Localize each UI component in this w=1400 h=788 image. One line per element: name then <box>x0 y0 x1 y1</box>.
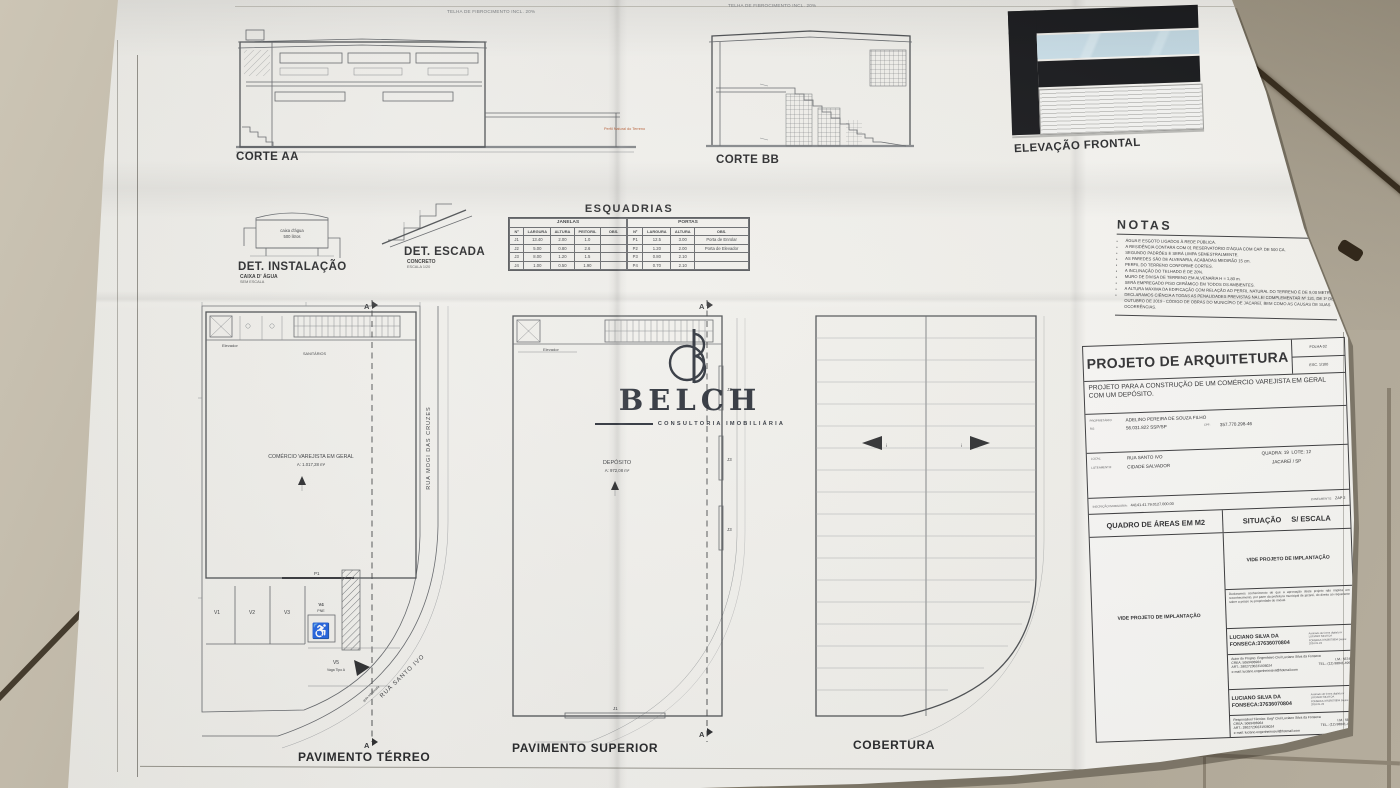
corte-aa-linework <box>236 30 636 152</box>
terreo-label: PAVIMENTO TÉRREO <box>298 750 430 764</box>
folha-label: FOLHA <box>1309 345 1321 349</box>
notas-block: NOTAS ÁGUA E ESGOTO LIGADOS À REDE PÚBLI… <box>1115 218 1339 321</box>
local-label: LOCAL: <box>1091 456 1127 462</box>
signature-name: LUCIANO SILVA DA FONSECA:37636070804 <box>1227 633 1309 648</box>
superior-label: PAVIMENTO SUPERIOR <box>512 741 658 755</box>
terreo-room-area: A: 1.017,28 m² <box>297 462 326 467</box>
terreo-room-label: COMÉRCIO VAREJISTA EM GERAL <box>268 453 354 460</box>
corte-bb-label: CORTE BB <box>716 154 779 166</box>
esquadrias-block: ESQUADRIAS JANELAS Nº LARGURA ALTURA PEI… <box>508 203 750 271</box>
terreo-stall-pne: PNE <box>317 609 325 613</box>
quadro-areas-cell: VIDE PROJETO DE IMPLANTAÇÃO <box>1090 533 1231 742</box>
title-block: PROJETO DE ARQUITETURA FOLHA 02 ESC. 1/1… <box>1082 337 1359 743</box>
det-escada-sub2: ESCALA 1/20 <box>407 265 430 269</box>
superior-room-area: A: 972,08 m² <box>605 468 630 473</box>
portas-group-header: PORTAS <box>628 219 749 228</box>
det-instalacao-drawing: caixa d'água 500 litros <box>236 202 348 262</box>
escala-label: ESC. <box>1309 363 1318 367</box>
watermark-rule <box>595 423 653 424</box>
esquadrias-table: JANELAS Nº LARGURA ALTURA PEITORIL OBS. … <box>508 217 750 271</box>
roof-note-corte-bb: TELHA DE FIBROCIMENTO INCL. 20% <box>728 3 816 8</box>
loteamento-value: CIDADE SALVADOR <box>1127 463 1170 469</box>
cpf-value: 357.770.298-46 <box>1220 421 1252 427</box>
terreo-section-marker-bottom: A <box>364 741 370 750</box>
photo-of-architectural-drawing: TELHA DE FIBROCIMENTO INCL. 20% TELHA DE… <box>0 0 1400 788</box>
belch-logo-icon <box>661 326 719 386</box>
situacao-header: SITUAÇÃO S/ ESCALA <box>1222 506 1351 532</box>
cidade-value: JACAREÍ / SP <box>1229 457 1344 466</box>
vide-projeto-left: VIDE PROJETO DE IMPLANTAÇÃO <box>1092 611 1225 624</box>
cobertura-slope-left: i <box>886 443 887 448</box>
terreo-section-marker-top: A <box>364 302 370 311</box>
escala-cell: ESC. 1/100 <box>1293 355 1346 373</box>
terreo-stall-v2: V2 <box>249 610 255 616</box>
quadra-value: QUADRA: 19 <box>1261 450 1288 456</box>
tank-text-1: caixa d'água <box>280 228 304 233</box>
corte-aa-label: CORTE AA <box>236 151 299 163</box>
superior-window-j1: J1 <box>613 706 618 711</box>
corte-aa-drawing <box>232 22 642 157</box>
tank-text-2: 500 litros <box>284 234 301 239</box>
autor-projeto-block: Autor do Projeto: Engenheiro Civil Lucia… <box>1228 651 1356 690</box>
digital-signature-2: LUCIANO SILVA DA FONSECA:37636070804 Ass… <box>1229 686 1357 716</box>
inscricao-label: INSCRIÇÃO IMOBILIÁRIA: <box>1093 503 1128 508</box>
terreo-stall-v1: V1 <box>214 610 220 616</box>
elevacao-frontal-drawing <box>1004 3 1208 142</box>
terreo-linework: A A Elevador SANITÁRIOS COMÉRCIO VAREJIS… <box>198 300 448 750</box>
det-instalacao-sub2: SEM ESCALA <box>240 280 264 284</box>
det-instalacao-linework: caixa d'água 500 litros <box>244 213 340 258</box>
cobertura-drawing: i i <box>798 300 1054 748</box>
janelas-table: JANELAS Nº LARGURA ALTURA PEITORIL OBS. … <box>509 218 627 270</box>
roof-note-corte-aa: TELHA DE FIBROCIMENTO INCL. 20% <box>447 9 535 14</box>
situacao-label: SITUAÇÃO <box>1243 515 1282 525</box>
terreo-stall-v3: V3 <box>284 610 290 616</box>
cpf-label: CPF: <box>1204 422 1220 428</box>
escala-value: 1/100 <box>1319 362 1328 366</box>
quadro-areas-header: QUADRO DE ÁREAS EM M2 <box>1089 510 1223 537</box>
lote-value: LOTE: 12 <box>1291 449 1311 455</box>
superior-elevador-label: Elevador <box>543 347 559 352</box>
det-escada-drawing <box>374 190 479 248</box>
janelas-group-header: JANELAS <box>510 219 627 228</box>
portas-table: PORTAS Nº LARGURA ALTURA OBS. P112.53.00… <box>627 218 749 270</box>
elevation-rol-door <box>1039 84 1205 136</box>
cobertura-label: COBERTURA <box>853 738 935 752</box>
terreo-stall-v5: V5 <box>333 660 339 666</box>
inscricao-value: 44141.41.79.0127.000.00 <box>1131 501 1174 507</box>
rg-value: 56.031.822 SSP/SP <box>1126 423 1204 431</box>
terrain-profile-note: Perfil Natural do Terreno <box>604 127 645 131</box>
esquadrias-title: ESQUADRIAS <box>508 203 750 215</box>
nota-item: DECLARAMOS CIÊNCIA A TODAS AS PENALIDADE… <box>1124 292 1337 315</box>
superior-room-label: DEPÓSITO <box>603 459 632 466</box>
belch-brand-text: BELCH <box>588 386 792 415</box>
belch-tagline: CONSULTORIA IMOBILIÁRIA <box>658 421 785 427</box>
belch-watermark: BELCH CONSULTORIA IMOBILIÁRIA <box>588 326 792 427</box>
elevation-glass-band <box>1037 30 1200 60</box>
cobertura-linework: i i <box>816 316 1044 740</box>
corte-bb-linework <box>706 31 914 146</box>
zoneamento-value: ZAP 2 <box>1335 495 1346 499</box>
superior-window-j3: J3 <box>727 527 732 532</box>
proprietario-label: PROPRIETÁRIO: <box>1090 418 1126 424</box>
det-escada-linework <box>382 204 472 247</box>
situacao-value: S/ ESCALA <box>1291 513 1331 523</box>
vide-projeto-right: VIDE PROJETO DE IMPLANTAÇÃO <box>1224 529 1353 590</box>
folha-cell: FOLHA 02 <box>1292 338 1345 357</box>
declaration-text: Declaramos conhecimento de que a aprovaç… <box>1226 586 1354 629</box>
superior-section-marker-top: A <box>699 302 705 311</box>
terreo-stall-v4: V4 <box>318 602 324 607</box>
wheelchair-icon: ♿ <box>312 622 331 640</box>
proprietario-value: ADELINO PEREIRA DE SOUZA FILHO <box>1126 415 1207 423</box>
terreo-elevador-label: Elevador <box>222 343 238 348</box>
signature-info: Assinado de forma digital por LUCIANO SI… <box>1309 631 1355 646</box>
local-value: RUA SANTO IVO <box>1127 454 1163 460</box>
pavimento-terreo-drawing: A A Elevador SANITÁRIOS COMÉRCIO VAREJIS… <box>186 298 476 750</box>
zoneamento-label: ZONEAMENTO: <box>1311 496 1332 501</box>
rg-label: RG: <box>1090 426 1126 432</box>
terreo-door-p1: P1 <box>314 571 320 576</box>
superior-section-marker-bottom: A <box>699 730 705 739</box>
street-rua-santo-ivo: RUA SANTO IVO <box>379 654 426 700</box>
street-rua-mogi-das-cruzes: RUA MOGI DAS CRUZES <box>426 406 432 489</box>
notas-list: ÁGUA E ESGOTO LIGADOS À REDE PÚBLICA. A … <box>1115 238 1339 321</box>
elevation-left-column <box>1008 10 1040 135</box>
folha-value: 02 <box>1323 345 1327 349</box>
terreo-sanitarios-label: SANITÁRIOS <box>303 352 326 356</box>
sheet-frame-left-inner <box>137 55 138 777</box>
floor-grout-right-vertical <box>1387 388 1391 788</box>
signature-name: LUCIANO SILVA DA FONSECA:37636070804 <box>1229 694 1311 709</box>
loteamento-label: LOTEAMENTO: <box>1091 464 1127 470</box>
elevation-mid-band <box>1038 56 1201 88</box>
sheet-frame-left-outer <box>117 40 118 772</box>
terreo-stall-v5-sub: Vaga Tipo A <box>327 668 346 672</box>
det-escada-label: DET. ESCADA <box>404 246 485 258</box>
drawing-sheet: TELHA DE FIBROCIMENTO INCL. 20% TELHA DE… <box>0 0 1400 788</box>
superior-window-j3: J3 <box>727 457 732 462</box>
corte-bb-drawing <box>700 24 920 154</box>
cobertura-slope-right: i <box>961 443 962 448</box>
det-instalacao-label: DET. INSTALAÇÃO <box>238 261 347 273</box>
